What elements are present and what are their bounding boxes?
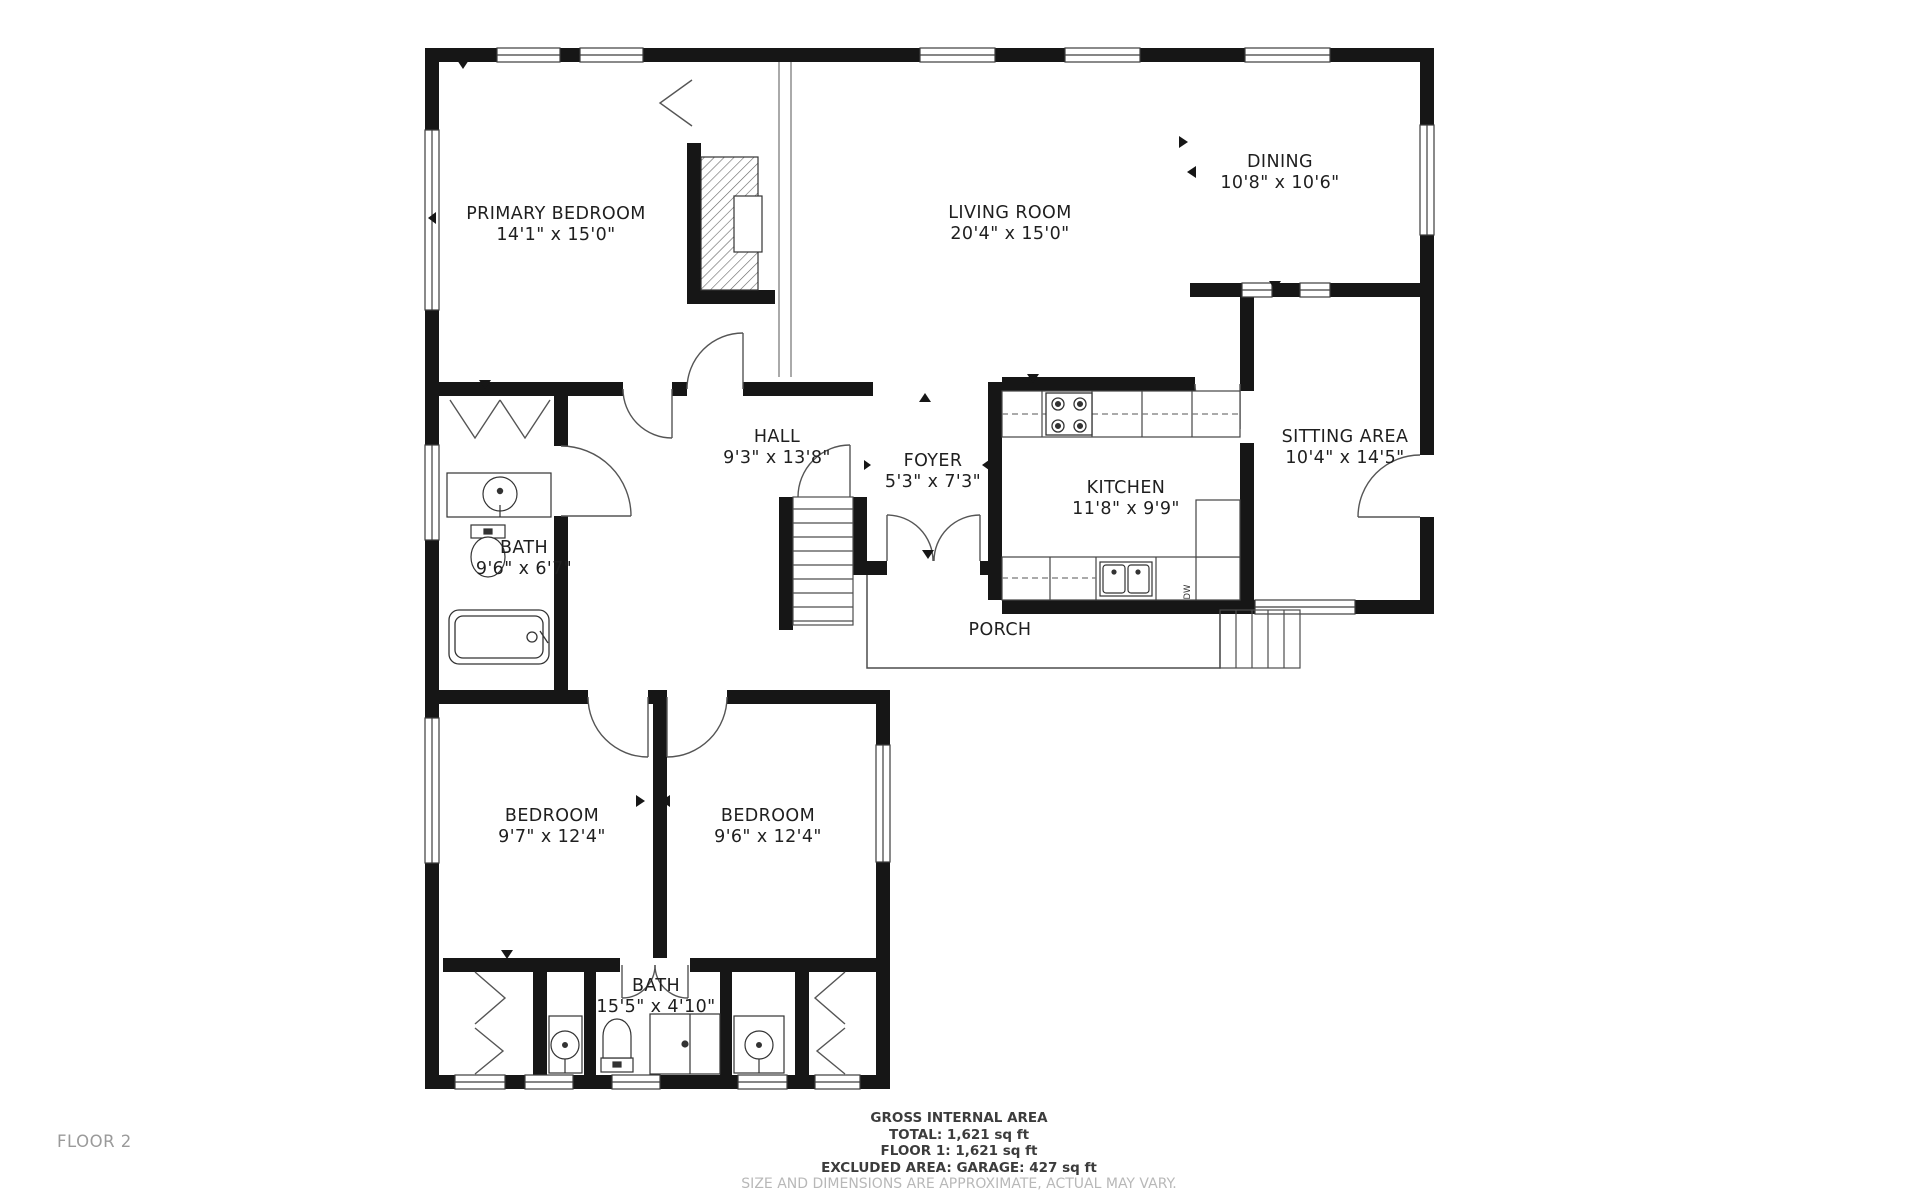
room-dims: 5'3" x 7'3": [885, 472, 981, 493]
room-label-bedroom-right: BEDROOM 9'6" x 12'4": [714, 806, 822, 848]
room-label-dining: DINING 10'8" x 10'6": [1220, 152, 1339, 194]
room-name: BATH: [476, 538, 572, 559]
porch-steps-icon: [1220, 610, 1300, 668]
stove-icon: [1046, 393, 1092, 435]
room-name: BEDROOM: [714, 806, 822, 827]
room-label-porch: PORCH: [969, 620, 1032, 641]
room-name: BATH: [596, 976, 715, 997]
room-dims: 10'8" x 10'6": [1220, 173, 1339, 194]
kitchen-counter-top: [1002, 391, 1240, 437]
room-label-bath-upper: BATH 9'6" x 6'7": [476, 538, 572, 580]
room-dims: 14'1" x 15'0": [466, 225, 646, 246]
room-dims: 20'4" x 15'0": [948, 224, 1071, 245]
area-summary: GROSS INTERNAL AREA TOTAL: 1,621 sq ft F…: [741, 1110, 1176, 1193]
room-label-foyer: FOYER 5'3" x 7'3": [885, 451, 981, 493]
kitchen-sink-icon: [1100, 562, 1152, 596]
room-name: FOYER: [885, 451, 981, 472]
room-name: DINING: [1220, 152, 1339, 173]
room-name: KITCHEN: [1072, 478, 1180, 499]
toilet-icon: [601, 1019, 633, 1072]
room-dims: 9'6" x 6'7": [476, 559, 572, 580]
room-dims: 9'3" x 13'8": [723, 448, 831, 469]
bathtub-icon: [449, 610, 549, 664]
floor-number-label: FLOOR 2: [57, 1132, 132, 1151]
room-label-hall: HALL 9'3" x 13'8": [723, 427, 831, 469]
room-label-bath-lower: BATH 15'5" x 4'10": [596, 976, 715, 1018]
sink-icon: [734, 1016, 784, 1073]
area-floor1: FLOOR 1: 1,621 sq ft: [741, 1143, 1176, 1160]
vanity-sink-icon: [447, 473, 551, 517]
room-dims: 15'5" x 4'10": [596, 997, 715, 1018]
room-label-primary-bedroom: PRIMARY BEDROOM 14'1" x 15'0": [466, 204, 646, 246]
room-name: BEDROOM: [498, 806, 606, 827]
room-name: HALL: [723, 427, 831, 448]
area-excluded: EXCLUDED AREA: GARAGE: 427 sq ft: [741, 1160, 1176, 1177]
room-name: PRIMARY BEDROOM: [466, 204, 646, 225]
room-dims: 9'7" x 12'4": [498, 827, 606, 848]
room-name: PORCH: [969, 620, 1032, 641]
sink-icon: [549, 1016, 582, 1073]
room-label-living-room: LIVING ROOM 20'4" x 15'0": [948, 203, 1071, 245]
dishwasher-label: DW: [1183, 584, 1193, 600]
room-name: LIVING ROOM: [948, 203, 1071, 224]
area-disclaimer: SIZE AND DIMENSIONS ARE APPROXIMATE, ACT…: [741, 1176, 1176, 1193]
room-label-sitting-area: SITTING AREA 10'4" x 14'5": [1282, 427, 1409, 469]
room-label-bedroom-left: BEDROOM 9'7" x 12'4": [498, 806, 606, 848]
floor-plan-page: DW: [0, 0, 1920, 1200]
room-name: SITTING AREA: [1282, 427, 1409, 448]
room-dims: 10'4" x 14'5": [1282, 448, 1409, 469]
room-dims: 11'8" x 9'9": [1072, 499, 1180, 520]
room-label-kitchen: KITCHEN 11'8" x 9'9": [1072, 478, 1180, 520]
area-total: TOTAL: 1,621 sq ft: [741, 1127, 1176, 1144]
area-summary-title: GROSS INTERNAL AREA: [741, 1110, 1176, 1127]
room-dims: 9'6" x 12'4": [714, 827, 822, 848]
fireplace-icon: [701, 62, 791, 377]
staircase-icon: [793, 497, 853, 625]
shower-icon: [650, 1014, 720, 1074]
floor-plan-drawing: DW: [0, 0, 1920, 1200]
